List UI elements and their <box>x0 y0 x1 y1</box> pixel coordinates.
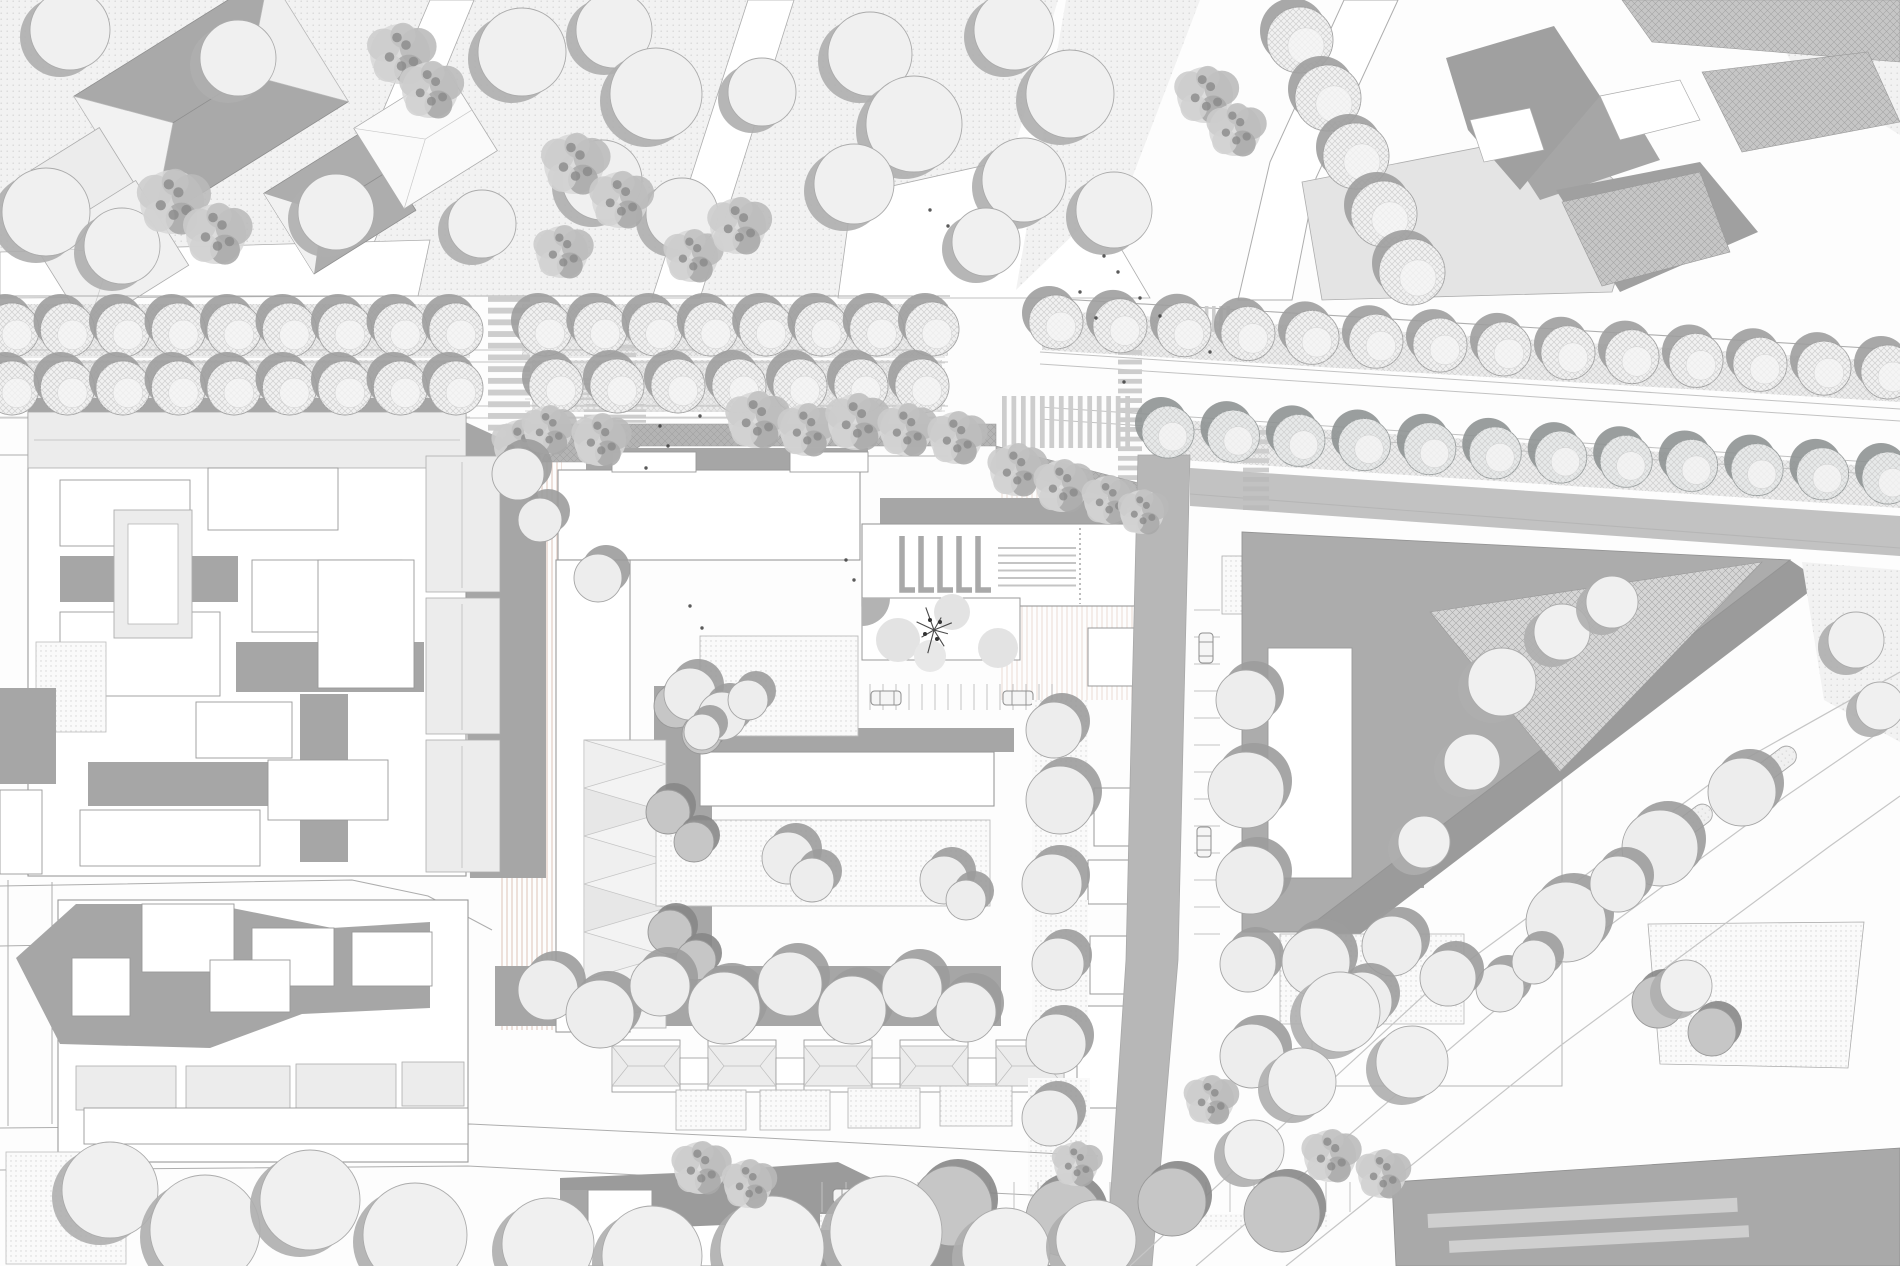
leafy-speckle <box>803 436 811 444</box>
car <box>871 691 901 705</box>
leafy-speckle <box>755 1186 763 1194</box>
crosswalk-stripe <box>1118 437 1142 442</box>
leafy-speckle <box>385 52 395 62</box>
tree-highlight <box>1174 320 1204 350</box>
leafy-speckle <box>793 428 801 436</box>
person-dot <box>1094 316 1097 319</box>
tree-crown <box>1444 734 1500 790</box>
tree-highlight <box>646 319 676 349</box>
leafy-speckle <box>700 258 708 266</box>
tree-crown <box>478 8 566 96</box>
tree-crown <box>1026 766 1094 834</box>
leafy-speckle <box>753 427 762 436</box>
tree-highlight <box>1289 431 1318 460</box>
tree-highlight <box>1420 439 1449 468</box>
leafy-speckle <box>1109 489 1117 497</box>
leafy-speckle <box>1383 1163 1391 1171</box>
block-roof <box>402 1062 464 1106</box>
plan-layers <box>0 0 1900 1266</box>
block-roof <box>186 1066 290 1110</box>
tree-highlight <box>335 320 365 350</box>
leafy-speckle <box>1323 1138 1331 1146</box>
tree-highlight <box>811 319 841 349</box>
tree-highlight <box>790 376 820 406</box>
tree-highlight <box>535 319 565 349</box>
crosswalk-stripe <box>1030 396 1035 448</box>
leafy-speckle <box>1024 472 1032 480</box>
tree-highlight <box>1046 312 1076 342</box>
crosswalk-stripe <box>488 390 530 396</box>
person-dot <box>946 224 949 227</box>
leafy-speckle <box>907 418 915 426</box>
tree-crown <box>1268 1048 1336 1116</box>
tree-highlight <box>590 319 620 349</box>
leafy-speckle <box>1207 1106 1215 1114</box>
tree-highlight <box>701 319 731 349</box>
tree-highlight <box>224 320 254 350</box>
tree-highlight <box>113 320 143 350</box>
house-link <box>680 1058 708 1084</box>
tree-crown <box>1512 940 1556 984</box>
tree-crown <box>200 20 276 96</box>
tree-highlight <box>113 378 143 408</box>
house-link <box>968 1058 996 1084</box>
tree-highlight <box>1558 343 1588 373</box>
house-link <box>872 1058 900 1084</box>
crosswalk-stripe <box>1118 369 1142 374</box>
crosswalk-stripe <box>1049 396 1054 448</box>
leafy-speckle <box>1140 517 1147 524</box>
leafy-speckle <box>1009 452 1017 460</box>
row-house <box>804 1040 872 1092</box>
tree-highlight <box>1238 324 1268 354</box>
tree-highlight <box>391 320 421 350</box>
tree-highlight <box>1355 435 1384 464</box>
leafy-speckle <box>545 436 553 444</box>
tree-highlight <box>1813 464 1842 493</box>
car-body <box>871 691 901 705</box>
leafy-speckle <box>746 229 755 238</box>
leafy-speckle <box>742 1167 750 1175</box>
leafy-speckle <box>1376 1157 1384 1165</box>
leafy-speckle <box>857 409 866 418</box>
person-dot <box>1122 380 1125 383</box>
tree-highlight <box>224 378 254 408</box>
tree-crown <box>818 976 886 1044</box>
person-dot <box>666 444 669 447</box>
tree-highlight <box>1400 260 1436 296</box>
leafy-speckle <box>423 70 432 79</box>
leafy-speckle <box>693 1150 701 1158</box>
tree-crown <box>1468 648 1536 716</box>
person-dot <box>1208 350 1211 353</box>
leafy-speckle <box>964 440 972 448</box>
leafy-speckle <box>1202 102 1211 111</box>
leafy-speckle <box>587 438 595 446</box>
leafy-speckle <box>799 412 807 420</box>
block-roof <box>296 1064 396 1108</box>
leafy-speckle <box>679 254 687 262</box>
leafy-speckle <box>1017 458 1025 466</box>
tree-crown <box>674 822 714 862</box>
tree-highlight <box>912 376 942 406</box>
tree-crown <box>1216 846 1284 914</box>
tree-crown <box>1022 1090 1078 1146</box>
leafy-speckle <box>1217 1102 1225 1110</box>
tree-crown <box>790 858 834 902</box>
small-block <box>0 790 42 874</box>
block-roof <box>76 1066 176 1110</box>
tree-crown <box>1376 1026 1448 1098</box>
crosswalk-stripe <box>1078 396 1083 448</box>
person-dot <box>1078 290 1081 293</box>
leafy-speckle <box>953 444 961 452</box>
car-body <box>1199 633 1213 663</box>
tree-crown <box>1688 1008 1736 1056</box>
leafy-speckle <box>697 1174 705 1182</box>
leafy-speckle <box>208 213 218 223</box>
tree-crown <box>728 58 796 126</box>
leafy-speckle <box>1065 1163 1072 1170</box>
leafy-speckle <box>957 426 965 434</box>
person-dot <box>928 208 931 211</box>
leafy-speckle <box>555 234 563 242</box>
leafy-speckle <box>401 40 411 50</box>
tree-crown <box>298 174 374 250</box>
leafy-speckle <box>749 1173 757 1181</box>
leafy-speckle <box>1105 506 1113 514</box>
wing-building <box>72 958 130 1016</box>
leafy-speckle <box>621 187 630 196</box>
tree-crown <box>260 1150 360 1250</box>
tree-highlight <box>2 378 32 408</box>
tree-highlight <box>446 378 476 408</box>
tree-crown <box>1208 752 1284 828</box>
leafy-speckle <box>1074 1169 1081 1176</box>
court-tower <box>128 524 178 624</box>
tree-crown <box>946 880 986 920</box>
leafy-speckle <box>563 240 571 248</box>
car <box>1199 633 1213 663</box>
leafy-speckle <box>542 413 550 421</box>
leafy-speckle <box>608 442 616 450</box>
leafy-speckle <box>1211 1089 1219 1097</box>
playground-mound <box>934 594 970 630</box>
leafy-speckle <box>571 171 581 181</box>
wing-building <box>80 810 260 866</box>
leafy-speckle <box>1148 514 1155 521</box>
block-roof <box>426 598 500 734</box>
leafy-speckle <box>1222 128 1230 136</box>
leafy-speckle <box>225 237 235 247</box>
person-dot <box>1158 314 1161 317</box>
person-dot <box>688 604 691 607</box>
tree-crown <box>1032 938 1084 990</box>
tree-crown <box>1586 576 1638 628</box>
tree-highlight <box>1551 447 1580 476</box>
crosswalk-stripe <box>1068 396 1073 448</box>
leafy-speckle <box>914 432 922 440</box>
leafy-speckle <box>559 258 567 266</box>
leafy-speckle <box>597 446 605 454</box>
branch-dot <box>923 632 927 636</box>
tree-highlight <box>1366 331 1396 361</box>
tree-crown <box>1590 856 1646 912</box>
leafy-speckle <box>1077 1154 1084 1161</box>
leafy-speckle <box>757 407 766 416</box>
crosswalk-stripe <box>488 401 530 407</box>
wing-building <box>196 702 292 758</box>
tree-crown <box>952 208 1020 276</box>
crosswalk-stripe <box>488 355 530 361</box>
garden-plot <box>848 1088 920 1128</box>
tree-highlight <box>169 378 199 408</box>
leafy-speckle <box>201 232 211 242</box>
tree-highlight <box>1747 460 1776 489</box>
crosswalk-stripe <box>1118 446 1142 451</box>
person-dot <box>1102 254 1105 257</box>
tree-highlight <box>607 376 637 406</box>
leafy-speckle <box>575 150 585 160</box>
leafy-speckle <box>943 436 951 444</box>
person-dot <box>852 578 855 581</box>
block-roof <box>426 456 500 592</box>
leafy-speckle <box>893 428 901 436</box>
wing-building <box>352 932 432 986</box>
crosswalk-stripe <box>1097 396 1102 448</box>
leafy-speckle <box>606 198 615 207</box>
tree-crown <box>688 972 760 1044</box>
leafy-speckle <box>1059 492 1067 500</box>
tree-crown <box>684 714 720 750</box>
leafy-speckle <box>1082 1166 1089 1173</box>
leafy-speckle <box>814 432 822 440</box>
row-house <box>708 1040 776 1092</box>
leafy-speckle <box>1096 499 1104 507</box>
tree-highlight <box>1494 339 1524 369</box>
wing-building <box>268 760 388 820</box>
leafy-speckle <box>173 187 183 197</box>
row-house <box>612 1040 680 1092</box>
leafy-speckle <box>742 418 751 427</box>
leafy-speckle <box>1370 1173 1378 1181</box>
leafy-speckle <box>217 220 227 230</box>
tree-highlight <box>1110 316 1140 346</box>
tree-highlight <box>867 319 897 349</box>
branch-dot <box>935 637 939 641</box>
leafy-speckle <box>764 423 773 432</box>
tree-highlight <box>1622 347 1652 377</box>
garden-plot <box>940 1086 1012 1126</box>
leafy-speckle <box>745 1190 753 1198</box>
leafy-speckle <box>899 412 907 420</box>
leafy-speckle <box>427 97 436 106</box>
stairs-stripe <box>1243 468 1269 473</box>
tree-highlight <box>546 376 576 406</box>
tree-highlight <box>1158 422 1187 451</box>
leafy-speckle <box>1206 82 1215 91</box>
playground-mound <box>876 618 920 662</box>
leafy-speckle <box>559 162 569 172</box>
car-body <box>1003 691 1033 705</box>
leafy-speckle <box>168 210 178 220</box>
tree-highlight <box>280 320 310 350</box>
tree-highlight <box>169 320 199 350</box>
leafy-speckle <box>1228 112 1236 120</box>
tree-highlight <box>1302 327 1332 357</box>
leafy-speckle <box>1055 468 1063 476</box>
crosswalk-stripe <box>1011 396 1016 448</box>
tree-highlight <box>58 378 88 408</box>
leafy-speckle <box>685 238 693 246</box>
leafy-speckle <box>549 419 557 427</box>
tree-crown <box>566 980 634 1048</box>
leafy-speckle <box>1070 488 1078 496</box>
person-dot <box>698 414 701 417</box>
crosswalk-stripe <box>1118 360 1142 365</box>
person-dot <box>644 466 647 469</box>
site-plan-page: Architectural site plan <box>0 0 1900 1266</box>
leafy-speckle <box>1102 483 1110 491</box>
leafy-speckle <box>1131 511 1138 518</box>
leafy-speckle <box>1013 476 1021 484</box>
tree-crown <box>1708 758 1776 826</box>
leafy-speckle <box>724 224 733 233</box>
leafy-speckle <box>853 429 862 438</box>
person-dot <box>658 424 661 427</box>
leafy-speckle <box>438 93 447 102</box>
garden-plot <box>760 1090 830 1130</box>
block-roof <box>426 740 500 872</box>
leafy-speckle <box>1003 468 1011 476</box>
leafy-speckle <box>687 1166 695 1174</box>
crosswalk-stripe <box>1087 396 1092 448</box>
mews-house <box>1090 936 1128 994</box>
crosswalk-stripe <box>1002 396 1007 448</box>
leafy-speckle <box>555 432 563 440</box>
leafy-speckle <box>397 61 407 71</box>
leafy-speckle <box>864 425 873 434</box>
leafy-speckle <box>693 244 701 252</box>
leafy-speckle <box>213 241 223 251</box>
leafy-speckle <box>392 33 402 43</box>
tree-highlight <box>2 320 32 350</box>
leafy-speckle <box>1198 75 1207 84</box>
leafy-speckle <box>628 203 637 212</box>
leafy-speckle <box>1389 1176 1397 1184</box>
tree-crown <box>610 48 702 140</box>
tree-crown <box>1660 960 1712 1012</box>
leafy-speckle <box>1049 484 1057 492</box>
tree-crown <box>448 190 516 258</box>
leafy-speckle <box>849 402 858 411</box>
tree-highlight <box>922 319 952 349</box>
tree-highlight <box>1682 456 1711 485</box>
tree-crown <box>728 680 768 720</box>
wing-building <box>84 1108 468 1144</box>
leafy-speckle <box>1236 118 1244 126</box>
leafy-speckle <box>613 180 622 189</box>
car <box>1003 691 1033 705</box>
leafy-speckle <box>1213 98 1222 107</box>
leafy-speckle <box>593 422 601 430</box>
leafy-speckle <box>689 262 697 270</box>
leafy-speckle <box>949 420 957 428</box>
playground-mound <box>978 628 1018 668</box>
leafy-speckle <box>1070 1148 1077 1155</box>
leafy-speckle <box>566 143 576 153</box>
leafy-speckle <box>842 420 851 429</box>
leafy-speckle <box>536 429 544 437</box>
person-dot <box>700 626 703 629</box>
leafy-speckle <box>1243 132 1251 140</box>
tree-highlight <box>58 320 88 350</box>
leafy-speckle <box>1331 1144 1339 1152</box>
leafy-speckle <box>1232 136 1240 144</box>
leafy-speckle <box>549 250 557 258</box>
leafy-speckle <box>513 428 521 436</box>
tree-crown <box>1026 50 1114 138</box>
crosswalk-stripe <box>1040 396 1045 448</box>
crosswalk-stripe <box>1106 396 1111 448</box>
garden-plot <box>676 1090 746 1130</box>
tree-crown <box>1224 1120 1284 1180</box>
residential-mid-slab <box>700 752 994 806</box>
tree-crown <box>518 498 562 542</box>
leafy-speckle <box>1327 1162 1335 1170</box>
leafy-speckle <box>1204 1083 1212 1091</box>
community-hall <box>862 524 1162 606</box>
tree-highlight <box>1686 350 1716 380</box>
leafy-speckle <box>1136 496 1143 503</box>
tree-highlight <box>1430 335 1460 365</box>
tree-highlight <box>1814 358 1844 388</box>
person-dot <box>844 558 847 561</box>
leafy-speckle <box>583 167 593 177</box>
leafy-speckle <box>416 88 425 97</box>
house-link <box>776 1058 804 1084</box>
person-dot <box>1116 270 1119 273</box>
tree-crown <box>492 448 544 500</box>
wing-building <box>318 560 414 688</box>
tree-crown <box>1076 172 1152 248</box>
leafy-speckle <box>1143 502 1150 509</box>
leafy-speckle <box>570 254 578 262</box>
tree-crown <box>1022 854 1082 914</box>
tree-crown <box>1026 1014 1086 1074</box>
crosswalk-stripe <box>1118 398 1142 403</box>
leafy-speckle <box>1198 1099 1206 1107</box>
small-block <box>0 688 56 784</box>
roof-dormer <box>612 452 696 472</box>
leafy-speckle <box>731 206 740 215</box>
crosswalk-stripe <box>1118 389 1142 394</box>
tree-highlight <box>280 378 310 408</box>
wing-building <box>210 960 290 1012</box>
tree-highlight <box>1224 427 1253 456</box>
branch-dot <box>928 618 932 622</box>
leafy-speckle <box>903 436 911 444</box>
tree-highlight <box>1750 354 1780 384</box>
leafy-speckle <box>739 213 748 222</box>
car-body <box>1197 827 1211 857</box>
tree-highlight <box>668 376 698 406</box>
leafy-speckle <box>1191 93 1200 102</box>
site-plan-canvas: Architectural site plan <box>0 0 1900 1266</box>
tree-crown <box>814 144 894 224</box>
car <box>1197 827 1211 857</box>
leafy-speckle <box>617 207 626 216</box>
